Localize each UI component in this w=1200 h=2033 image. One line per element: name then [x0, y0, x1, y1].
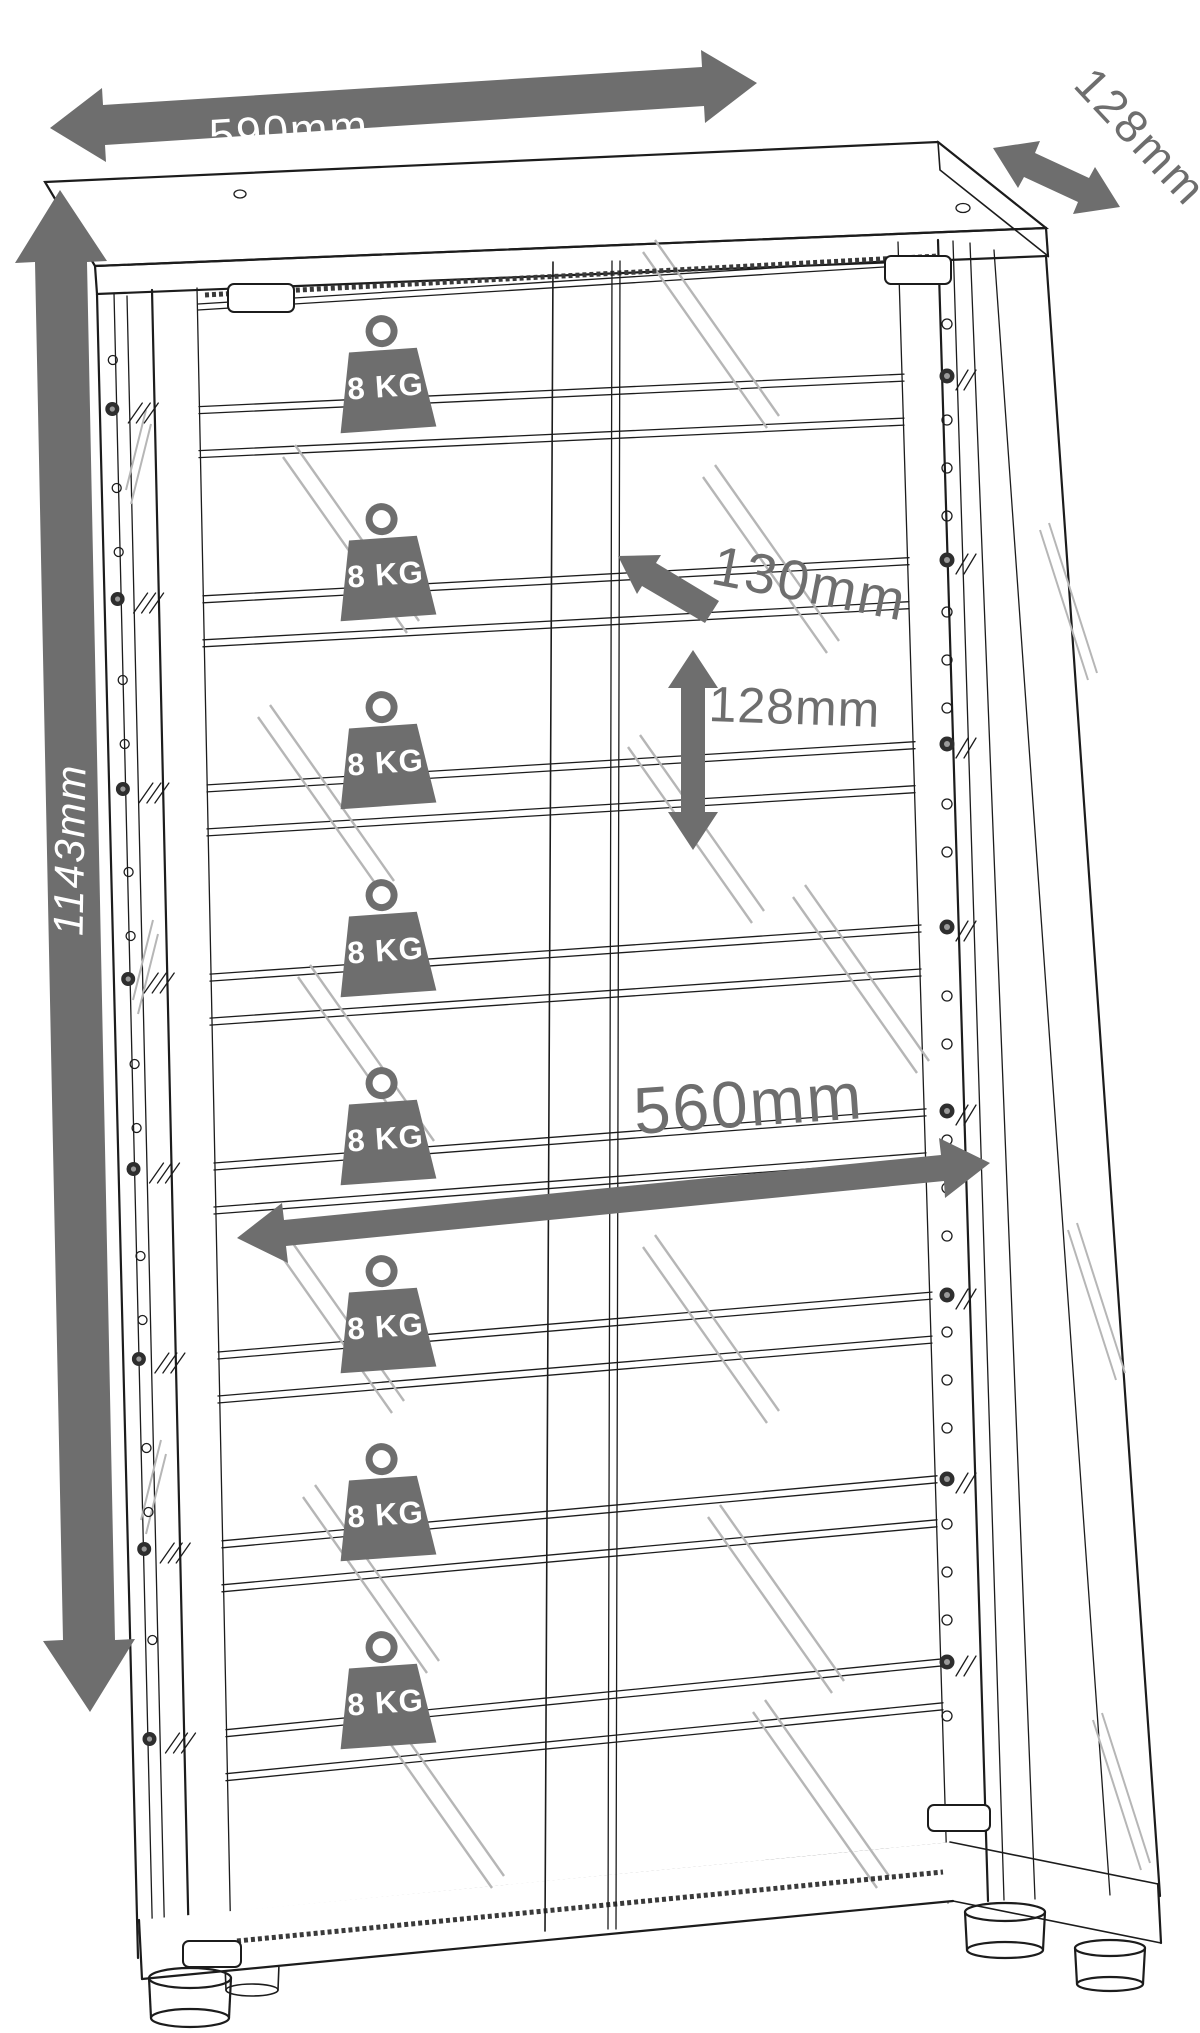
glass-reflection	[643, 1247, 767, 1423]
shelf-edge-line	[222, 1476, 937, 1541]
shelf-pin-hole	[942, 1567, 952, 1577]
top-interior-edge	[198, 260, 900, 304]
shelf-screw-center	[944, 1292, 950, 1298]
dimension-annotations: 590mm 128mm 1143mm 130mm 128mm 560mm	[15, 50, 1200, 1712]
shelf-load-weight: 8 KG	[333, 1064, 437, 1185]
shelf-screw-center	[115, 596, 120, 601]
shelf-pin-hole	[942, 703, 952, 713]
shelf-load-weight: 8 KG	[333, 1628, 437, 1749]
top-track	[205, 256, 938, 295]
shelf-load-weight: 8 KG	[333, 500, 437, 621]
shelf-load-icons: 8 KG8 KG8 KG8 KG8 KG8 KG8 KG8 KG	[333, 312, 437, 1749]
bracket-hatch	[150, 1163, 164, 1183]
side-glass-reflection	[138, 934, 158, 1014]
carcass	[97, 240, 1161, 1980]
shelf-screw-center	[944, 1659, 950, 1665]
shelf-pin-hole	[942, 1423, 952, 1433]
plinth-side-top	[950, 1842, 1158, 1884]
right-frame-line	[953, 241, 1004, 1900]
door-bracket-top-right	[885, 256, 951, 284]
shelf-pin-hole	[942, 847, 952, 857]
side-glass-reflection	[1093, 1720, 1141, 1870]
shelf-screw-center	[944, 1476, 950, 1482]
shelf-edge-line	[207, 793, 915, 836]
shelf-pin-hole	[114, 548, 123, 557]
bracket-hatch	[163, 1353, 177, 1373]
shelf-pin-hole	[126, 932, 135, 941]
shelf-screw-center	[944, 741, 950, 747]
top-width-dimension-arrow	[50, 50, 757, 162]
cam-lock-hole	[956, 204, 970, 213]
shelf-pin-hole	[942, 1039, 952, 1049]
shelf-depth-dimension-arrow	[618, 555, 719, 623]
bracket-hatch	[158, 1163, 172, 1183]
front-left-corner	[152, 290, 189, 1951]
shelf-screw-center	[944, 373, 950, 379]
shelf-edge-line	[207, 786, 915, 829]
shelf-pin-hole	[136, 1252, 145, 1261]
shelf-load-weight: 8 KG	[333, 876, 437, 997]
bracket-hatch	[134, 593, 148, 613]
foot-bottom	[226, 1984, 278, 1996]
glass-reflection	[655, 1235, 779, 1411]
door-bracket-bottom-right	[928, 1805, 990, 1831]
shelf-pin-hole	[138, 1316, 147, 1325]
shelf-screw-center	[142, 1546, 147, 1551]
glass-reflection	[793, 897, 917, 1073]
shelf-pin-hole	[942, 1711, 952, 1721]
shelf-edge-line	[222, 1527, 937, 1592]
left-door-edge	[545, 262, 553, 1931]
shelf-pin-hole	[942, 799, 952, 809]
shelf-load-label: 8 KG	[346, 1118, 425, 1158]
right-door-edge	[608, 261, 612, 1929]
shelf-edge-line	[199, 374, 904, 407]
right-door-edge	[616, 261, 620, 1929]
shelf-edge-line	[210, 976, 921, 1025]
shelf-edge-line	[203, 609, 909, 647]
shelf-pin-hole	[942, 1615, 952, 1625]
right-door-edge	[898, 242, 948, 1903]
shelf-edge-line	[210, 925, 921, 974]
glass-reflection	[720, 1505, 844, 1681]
shelf-edge-line	[218, 1299, 932, 1359]
shelf-load-label: 8 KG	[346, 742, 425, 782]
display-cabinet-dimension-diagram: 8 KG8 KG8 KG8 KG8 KG8 KG8 KG8 KG	[0, 0, 1200, 2033]
shelf-screw-center	[136, 1356, 141, 1361]
plinth-side-bottom	[953, 1901, 1161, 1943]
shelf-screw-center	[131, 1166, 136, 1171]
shelf-edge-line	[218, 1343, 932, 1403]
shelf-screw-center	[110, 406, 115, 411]
bracket-hatch	[155, 1353, 169, 1373]
shelf-screw-center	[944, 924, 950, 930]
shelf-screw-center	[944, 557, 950, 563]
bracket-hatch	[142, 593, 156, 613]
shelf-pin-hole	[112, 484, 121, 493]
shelf-load-label: 8 KG	[346, 366, 425, 406]
shelf-screw-center	[944, 1108, 950, 1114]
shelf-load-weight: 8 KG	[333, 312, 437, 433]
bracket-hatch	[139, 783, 153, 803]
shelf-screw-center	[147, 1736, 152, 1741]
shelf-edge-line	[222, 1520, 937, 1585]
shelf-hardware	[105, 319, 976, 1753]
bracket-hatch	[150, 593, 164, 613]
shelf-pitch-dimension-label: 128mm	[708, 676, 882, 738]
shelf-edge-line	[226, 1703, 943, 1774]
side-glass-reflection	[1040, 530, 1088, 680]
bracket-hatch	[166, 1733, 180, 1753]
shelf-load-label: 8 KG	[346, 1306, 425, 1346]
shelf-pin-hole	[142, 1444, 151, 1453]
shelf-pin-hole	[942, 463, 952, 473]
shelf-edge-line	[226, 1666, 943, 1737]
shelf-load-label: 8 KG	[346, 554, 425, 594]
bracket-hatch	[160, 1543, 174, 1563]
shelf-load-weight: 8 KG	[333, 1440, 437, 1561]
height-dimension-label: 1143mm	[45, 763, 95, 936]
bracket-hatch	[128, 403, 142, 423]
side-glass-reflection	[131, 424, 151, 504]
shelf-edge-line	[218, 1292, 932, 1352]
shelf-load-weight: 8 KG	[333, 1252, 437, 1373]
shelf-pin-hole	[942, 1231, 952, 1241]
side-glass-reflection	[1102, 1713, 1150, 1863]
bracket-hatch	[144, 403, 158, 423]
bracket-hatch	[147, 783, 161, 803]
shelf-load-label: 8 KG	[346, 1682, 425, 1722]
glass-reflection	[765, 1700, 889, 1876]
front-right-corner	[938, 240, 988, 1901]
right-side-glass-line	[994, 250, 1110, 1895]
shelf-load-label: 8 KG	[346, 1494, 425, 1534]
shelf-edge-line	[222, 1483, 937, 1548]
side-glass-reflection	[146, 1454, 166, 1534]
top-width-dimension-label: 590mm	[208, 100, 371, 161]
shelf-edge-line	[226, 1710, 943, 1781]
shelf-pin-hole	[942, 1519, 952, 1529]
shelf-pin-hole	[124, 868, 133, 877]
shelf-pin-hole	[942, 1327, 952, 1337]
top-depth-dimension-arrow	[993, 141, 1120, 214]
shelf-screw-center	[126, 976, 131, 981]
side-glass-reflection	[1068, 1230, 1116, 1380]
cam-lock-hole	[234, 190, 246, 198]
bracket-hatch	[171, 1353, 185, 1373]
bracket-hatch	[155, 783, 169, 803]
bracket-hatch	[152, 973, 166, 993]
inner-width-dimension-label: 560mm	[631, 1058, 866, 1148]
shelf-edge-line	[207, 749, 915, 792]
bracket-hatch	[176, 1543, 190, 1563]
shelf-screw-center	[120, 786, 125, 791]
shelf-load-weight: 8 KG	[333, 688, 437, 809]
right-outer-edge	[1046, 256, 1160, 1896]
glass-reflection	[805, 885, 929, 1061]
shelf-pin-hole	[942, 319, 952, 329]
door-bracket-bottom-left	[183, 1941, 241, 1967]
door-bracket-top-left	[228, 284, 294, 312]
foot-back-right	[1075, 1940, 1145, 1991]
shelf-edge-line	[207, 742, 915, 785]
shelf-pin-hole	[148, 1636, 157, 1645]
shelf-load-label: 8 KG	[346, 930, 425, 970]
shelf-edge-line	[218, 1336, 932, 1396]
left-stile-inner	[197, 288, 231, 1949]
glass-reflection	[708, 1517, 832, 1693]
shelf-pin-hole	[942, 607, 952, 617]
shelf-pin-hole	[942, 991, 952, 1001]
shelf-pin-hole	[942, 1375, 952, 1385]
